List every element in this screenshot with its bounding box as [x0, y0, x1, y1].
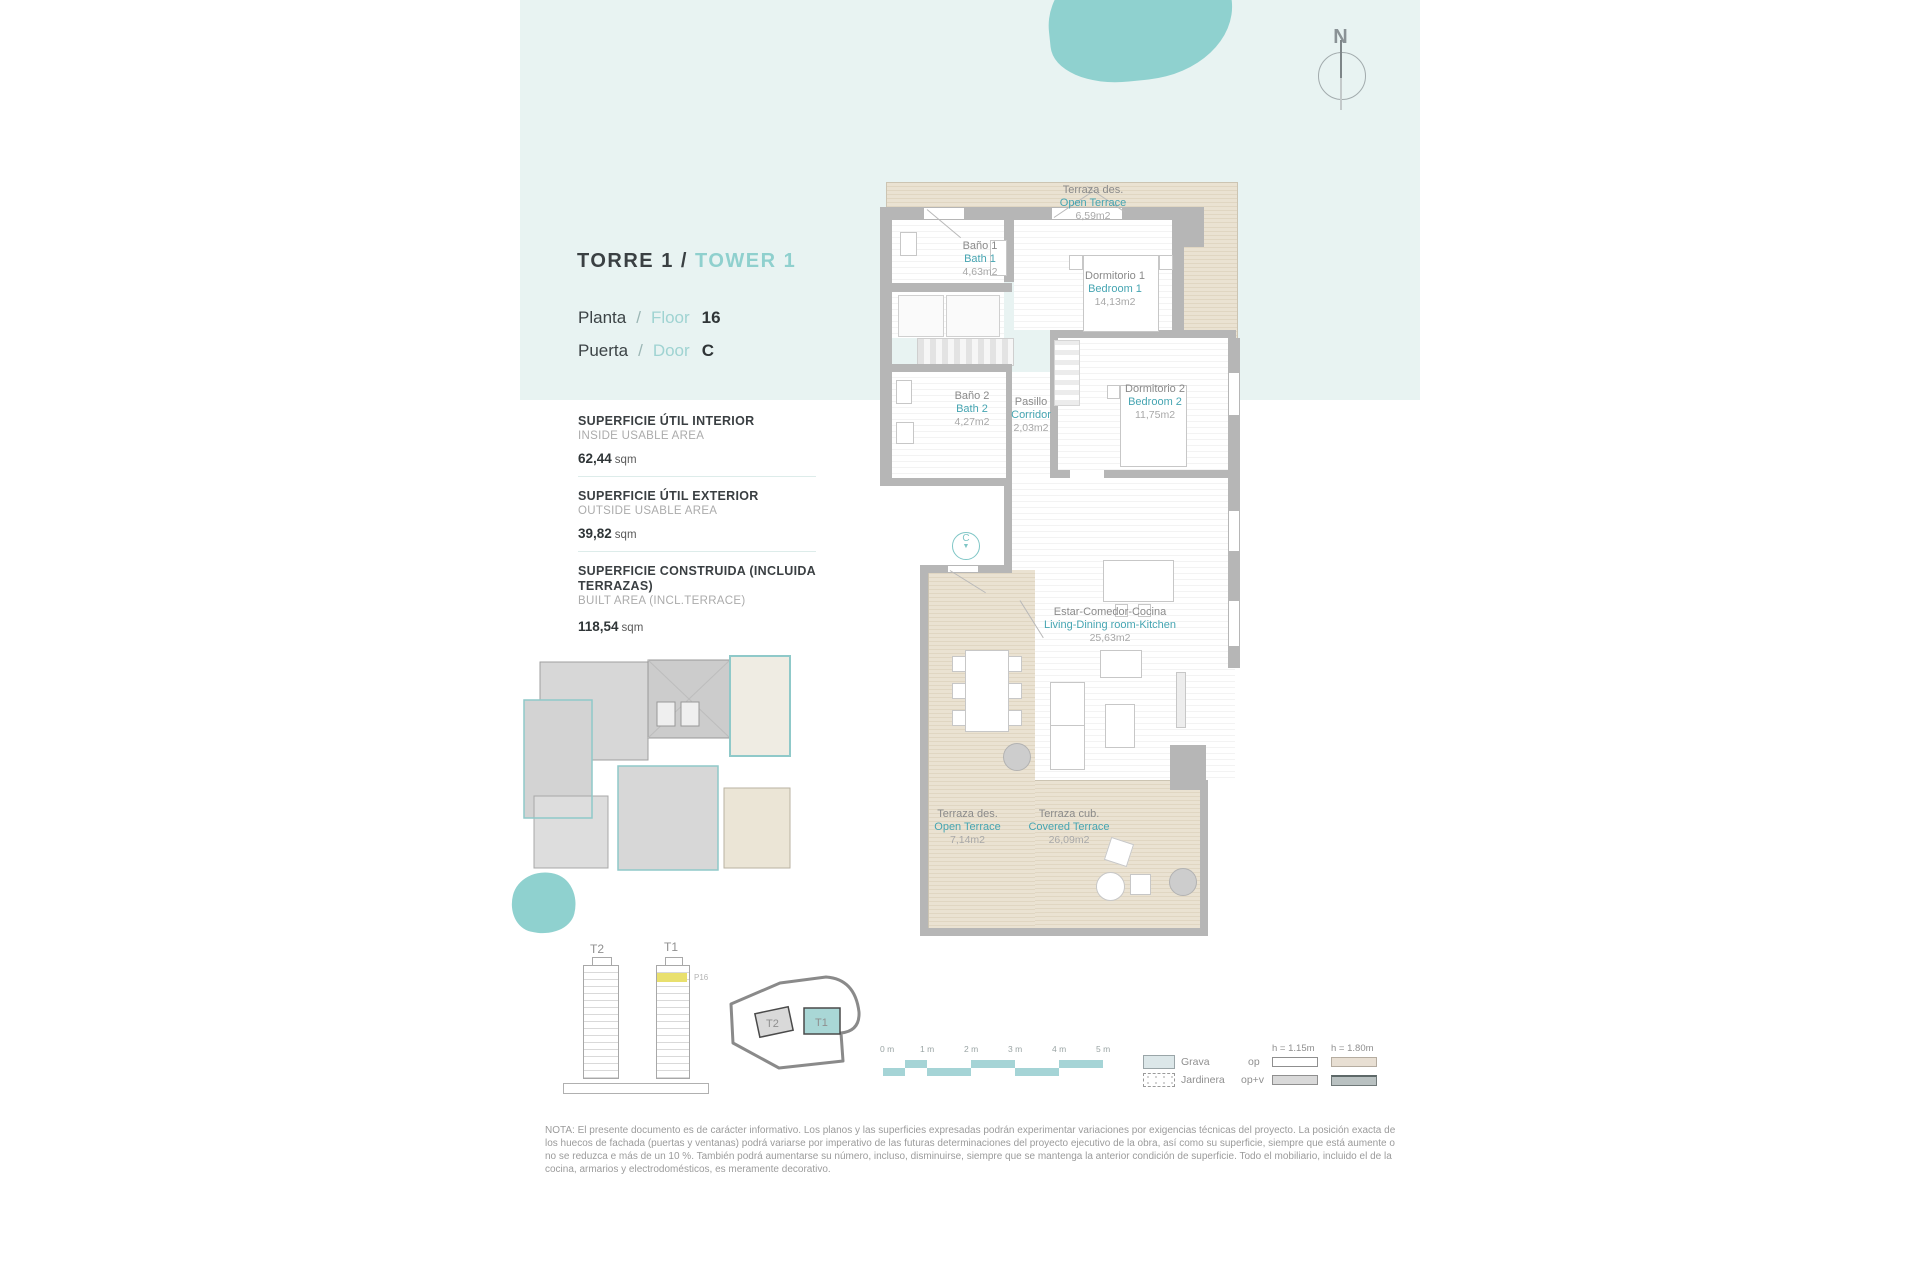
planter	[1003, 743, 1031, 771]
tower-t2-elevation	[583, 965, 619, 1079]
floor-label-en: Floor	[651, 308, 690, 327]
wall	[880, 364, 892, 486]
entry-floor	[1012, 478, 1228, 570]
highlighted-floor-band	[657, 973, 687, 982]
scale-bar: 0 m 1 m 2 m 3 m 4 m 5 m	[883, 1044, 1113, 1084]
closet	[946, 295, 1000, 337]
scale-tick: 5 m	[1096, 1044, 1110, 1054]
room-label-living: Estar-Comedor-Cocina Living-Dining room-…	[1035, 606, 1185, 645]
op-180-swatch	[1331, 1057, 1377, 1067]
room-name-es: Terraza des.	[915, 808, 1020, 821]
area-specs: SUPERFICIE ÚTIL INTERIOR INSIDE USABLE A…	[578, 414, 816, 634]
spec-number: 118,54	[578, 619, 619, 634]
door-arrow-icon: ▼	[953, 544, 979, 550]
sofa	[1050, 682, 1085, 727]
spec-item: SUPERFICIE ÚTIL INTERIOR INSIDE USABLE A…	[578, 414, 816, 466]
spec-title-en: BUILT AREA (INCL.TERRACE)	[578, 595, 816, 607]
room-area: 4,63m2	[920, 266, 1040, 279]
room-name-es: Estar-Comedor-Cocina	[1035, 606, 1185, 619]
nightstand	[1159, 255, 1173, 270]
decor-blob-left	[505, 865, 582, 941]
room-label-corridor: Pasillo Corridor 2,03m2	[991, 396, 1071, 435]
scale-tick: 2 m	[964, 1044, 978, 1054]
chair	[1008, 656, 1022, 672]
closet	[898, 295, 944, 337]
spec-item: SUPERFICIE CONSTRUIDA (INCLUIDA TERRAZAS…	[578, 564, 816, 634]
tower-base	[563, 1083, 709, 1094]
dining-table	[965, 650, 1009, 732]
chair	[1008, 683, 1022, 699]
spec-title-es: SUPERFICIE ÚTIL INTERIOR	[578, 414, 816, 429]
divider	[578, 476, 816, 477]
site-t1-label: T1	[815, 1017, 828, 1029]
spec-value: 62,44sqm	[578, 451, 816, 466]
sink	[896, 380, 912, 404]
room-label-terrace-open: Terraza des. Open Terrace 7,14m2	[915, 808, 1020, 847]
window	[1229, 600, 1239, 647]
legal-note: NOTA: El presente documento es de caráct…	[545, 1124, 1397, 1176]
wall	[884, 283, 1012, 292]
floor-label-es: Planta	[578, 308, 626, 327]
chair	[952, 710, 966, 726]
window	[1229, 372, 1239, 416]
scale-segment	[905, 1060, 927, 1068]
spec-number: 39,82	[578, 526, 612, 541]
separator: /	[628, 341, 653, 360]
height-180-label: h = 1.80m	[1331, 1043, 1374, 1054]
door-label-es: Puerta	[578, 341, 628, 360]
room-label-bath1: Baño 1 Bath 1 4,63m2	[920, 240, 1040, 279]
scale-segment	[1015, 1068, 1059, 1076]
op-v-180-swatch	[1331, 1075, 1377, 1086]
floor-row: Planta/Floor16	[578, 308, 721, 328]
spec-title-en: OUTSIDE USABLE AREA	[578, 505, 816, 517]
room-name-es: Terraza cub.	[1009, 808, 1129, 821]
spec-title-es: SUPERFICIE ÚTIL EXTERIOR	[578, 489, 816, 504]
room-name-en: Corridor	[991, 409, 1071, 422]
window	[1229, 510, 1239, 552]
room-area: 25,63m2	[1035, 632, 1185, 645]
door-row: Puerta/DoorC	[578, 341, 714, 361]
room-name-es: Dormitorio 1	[1055, 270, 1175, 283]
scale-segment	[1059, 1060, 1103, 1068]
spec-value: 39,82sqm	[578, 526, 816, 541]
op-v-label: op+v	[1241, 1074, 1264, 1086]
room-name-en: Open Terrace	[1033, 197, 1153, 210]
op-v-115-swatch	[1272, 1075, 1318, 1085]
kitchen-island	[1103, 560, 1174, 602]
spec-item: SUPERFICIE ÚTIL EXTERIOR OUTSIDE USABLE …	[578, 489, 816, 541]
room-area: 26,09m2	[1009, 834, 1129, 847]
room-name-es: Terraza des.	[1033, 184, 1153, 197]
wall	[892, 364, 1012, 372]
jardinera-swatch	[1143, 1073, 1175, 1087]
highlighted-floor-tag: P16	[694, 973, 708, 982]
compass-needle-icon	[1340, 40, 1342, 78]
divider	[578, 551, 816, 552]
tower-t1-elevation	[656, 965, 690, 1079]
armchair	[1100, 650, 1142, 678]
spec-unit: sqm	[612, 454, 637, 466]
op-115-swatch	[1272, 1057, 1318, 1067]
tower-t1-label: T1	[664, 940, 678, 954]
scale-tick: 3 m	[1008, 1044, 1022, 1054]
grava-label: Grava	[1181, 1056, 1210, 1068]
terrace-table-round	[1096, 872, 1125, 901]
tv-bench	[1176, 672, 1186, 728]
page-title: TORRE 1 / TOWER 1	[577, 250, 796, 273]
spec-value: 118,54sqm	[578, 619, 816, 634]
room-area: 7,14m2	[915, 834, 1020, 847]
coffee-table	[1105, 704, 1135, 748]
room-area: 14,13m2	[1055, 296, 1175, 309]
chair	[952, 683, 966, 699]
site-t2-label: T2	[766, 1018, 779, 1030]
spec-title-en: INSIDE USABLE AREA	[578, 430, 816, 442]
wall	[880, 478, 1012, 486]
wall	[1004, 478, 1012, 570]
legend: Grava Jardinera op op+v h = 1.15m h = 1.…	[1143, 1040, 1393, 1092]
toilet	[900, 232, 917, 256]
op-label: op	[1248, 1056, 1260, 1068]
floor-value: 16	[690, 308, 721, 327]
room-name-en: Open Terrace	[915, 821, 1020, 834]
planter	[1169, 868, 1197, 896]
title-es: TORRE 1 /	[577, 250, 688, 272]
room-name-en: Living-Dining room-Kitchen	[1035, 619, 1185, 632]
key-plan-thumbnail	[518, 648, 796, 876]
separator: /	[626, 308, 651, 327]
wall	[920, 565, 928, 933]
compass-needle-icon	[1340, 78, 1342, 110]
room-label-bedroom2: Dormitorio 2 Bedroom 2 11,75m2	[1095, 383, 1215, 422]
spec-unit: sqm	[612, 529, 637, 541]
floor-plan: Terraza des. Open Terrace 6,59m2 Baño 1 …	[872, 180, 1272, 962]
nightstand	[1069, 255, 1083, 270]
scale-segment	[883, 1068, 905, 1076]
sofa	[1050, 725, 1085, 770]
tower-t2-label: T2	[590, 942, 604, 956]
door-value: C	[690, 341, 714, 360]
wall	[920, 928, 1208, 936]
spec-number: 62,44	[578, 451, 612, 466]
scale-segment	[971, 1060, 1015, 1068]
room-name-en: Bath 1	[920, 253, 1040, 266]
door-opening	[1070, 470, 1104, 478]
room-name-es: Baño 1	[920, 240, 1040, 253]
height-115-label: h = 1.15m	[1272, 1043, 1315, 1054]
scale-segment	[927, 1068, 971, 1076]
room-area: 6,59m2	[1033, 210, 1153, 223]
compass-icon	[1318, 52, 1366, 100]
wall	[1200, 780, 1208, 928]
room-name-es: Pasillo	[991, 396, 1071, 409]
stair-hatch	[917, 338, 1014, 366]
room-name-en: Bedroom 1	[1055, 283, 1175, 296]
scale-tick: 0 m	[880, 1044, 894, 1054]
title-en: TOWER 1	[695, 250, 796, 272]
spec-title-es: SUPERFICIE CONSTRUIDA (INCLUIDA TERRAZAS…	[578, 564, 816, 594]
room-label-terrace-top: Terraza des. Open Terrace 6,59m2	[1033, 184, 1153, 223]
room-label-bedroom1: Dormitorio 1 Bedroom 1 14,13m2	[1055, 270, 1175, 309]
room-area: 2,03m2	[991, 422, 1071, 435]
door-label-en: Door	[653, 341, 690, 360]
room-label-terrace-covered: Terraza cub. Covered Terrace 26,09m2	[1009, 808, 1129, 847]
room-name-en: Bedroom 2	[1095, 396, 1215, 409]
chair	[952, 656, 966, 672]
room-name-en: Covered Terrace	[1009, 821, 1129, 834]
terrace-chair	[1130, 874, 1151, 895]
site-plan: T2 T1	[722, 972, 867, 1080]
room-area: 11,75m2	[1095, 409, 1215, 422]
grava-swatch	[1143, 1055, 1175, 1069]
chair	[1008, 710, 1022, 726]
room-name-es: Dormitorio 2	[1095, 383, 1215, 396]
entrance-door-marker: C ▼	[952, 532, 980, 560]
scale-tick: 4 m	[1052, 1044, 1066, 1054]
jardinera-label: Jardinera	[1181, 1074, 1225, 1086]
scale-tick: 1 m	[920, 1044, 934, 1054]
spec-unit: sqm	[619, 622, 644, 634]
